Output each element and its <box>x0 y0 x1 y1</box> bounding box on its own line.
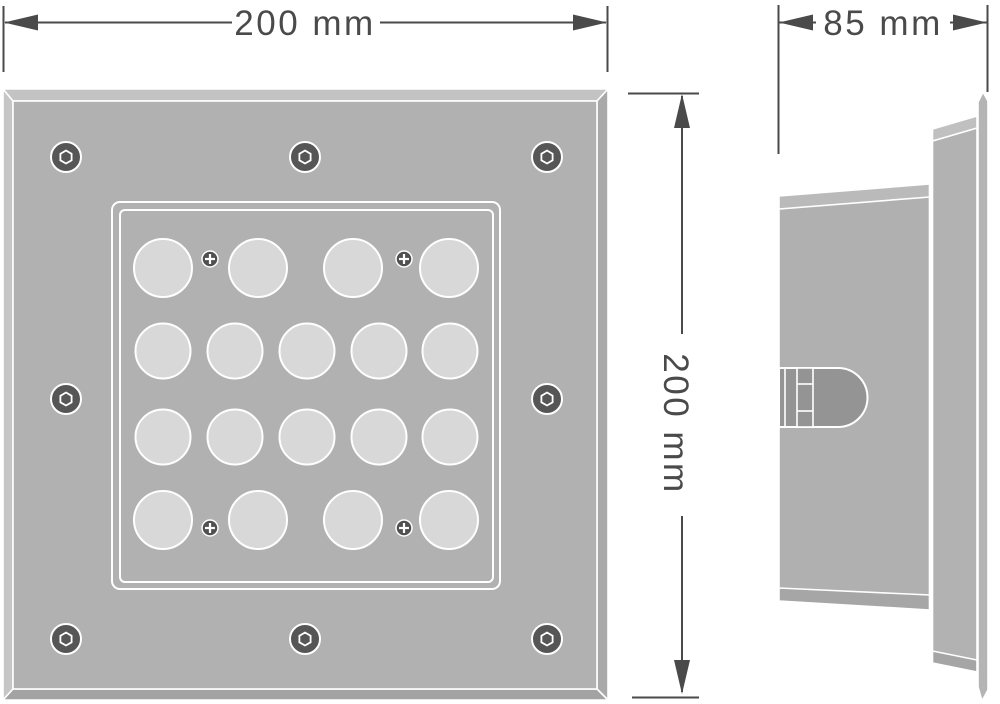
hex-socket-screw-icon <box>532 142 562 172</box>
led-lens <box>280 410 335 465</box>
hex-socket-screw-icon <box>532 624 562 654</box>
flange-edge <box>978 92 988 701</box>
led-lens <box>280 324 335 379</box>
led-lens <box>423 324 478 379</box>
cable-gland <box>779 368 868 427</box>
phillips-screw-icon <box>396 520 412 536</box>
led-lens <box>136 410 191 465</box>
dimension-label-front-height: 200 mm <box>656 353 695 494</box>
led-lens <box>420 239 478 297</box>
dimension-front-height: 200 mm <box>628 94 699 698</box>
hex-socket-screw-icon <box>290 142 320 172</box>
led-lens <box>352 324 407 379</box>
front-view <box>3 89 608 700</box>
hex-socket-screw-icon <box>532 384 562 414</box>
luminaire-drawing: 200 mm 85 mm 200 mm <box>0 0 1000 704</box>
led-lens <box>229 491 287 549</box>
plate-bevel-bottom <box>3 689 608 700</box>
arrow-down-icon <box>674 660 690 694</box>
dimension-label-front-width: 200 mm <box>234 4 375 43</box>
plate-face <box>13 101 597 689</box>
hex-socket-screw-icon <box>290 624 320 654</box>
front-plate-bevel <box>3 89 608 700</box>
hex-socket-screw-icon <box>51 384 81 414</box>
led-lens <box>208 410 263 465</box>
arrow-left-icon <box>779 15 813 31</box>
cable-gland-body <box>779 368 868 427</box>
bezel-side <box>933 116 978 672</box>
led-lens <box>229 239 287 297</box>
led-lens <box>134 491 192 549</box>
arrow-left-icon <box>4 15 38 31</box>
led-lens <box>423 410 478 465</box>
led-lens <box>420 491 478 549</box>
arrow-right-icon <box>573 15 607 31</box>
phillips-screw-icon <box>396 251 412 267</box>
plate-bevel-right <box>597 89 608 700</box>
phillips-screw-icon <box>202 251 218 267</box>
arrow-right-icon <box>953 15 987 31</box>
led-lens <box>324 239 382 297</box>
technical-drawing-page: 200 mm 85 mm 200 mm <box>0 0 1000 704</box>
led-lens <box>208 324 263 379</box>
cable-gland-band <box>797 368 813 427</box>
led-lens <box>134 239 192 297</box>
dimension-front-width: 200 mm <box>4 4 608 72</box>
plate-bevel-top <box>3 89 608 101</box>
plate-bevel-left <box>3 89 13 700</box>
side-view <box>779 92 988 701</box>
arrow-up-icon <box>674 94 690 128</box>
phillips-screw-icon <box>202 520 218 536</box>
led-lens <box>352 410 407 465</box>
dimension-label-side-depth: 85 mm <box>823 4 942 43</box>
hex-socket-screw-icon <box>51 624 81 654</box>
hex-socket-screw-icon <box>51 142 81 172</box>
led-lens <box>136 324 191 379</box>
led-lens <box>324 491 382 549</box>
